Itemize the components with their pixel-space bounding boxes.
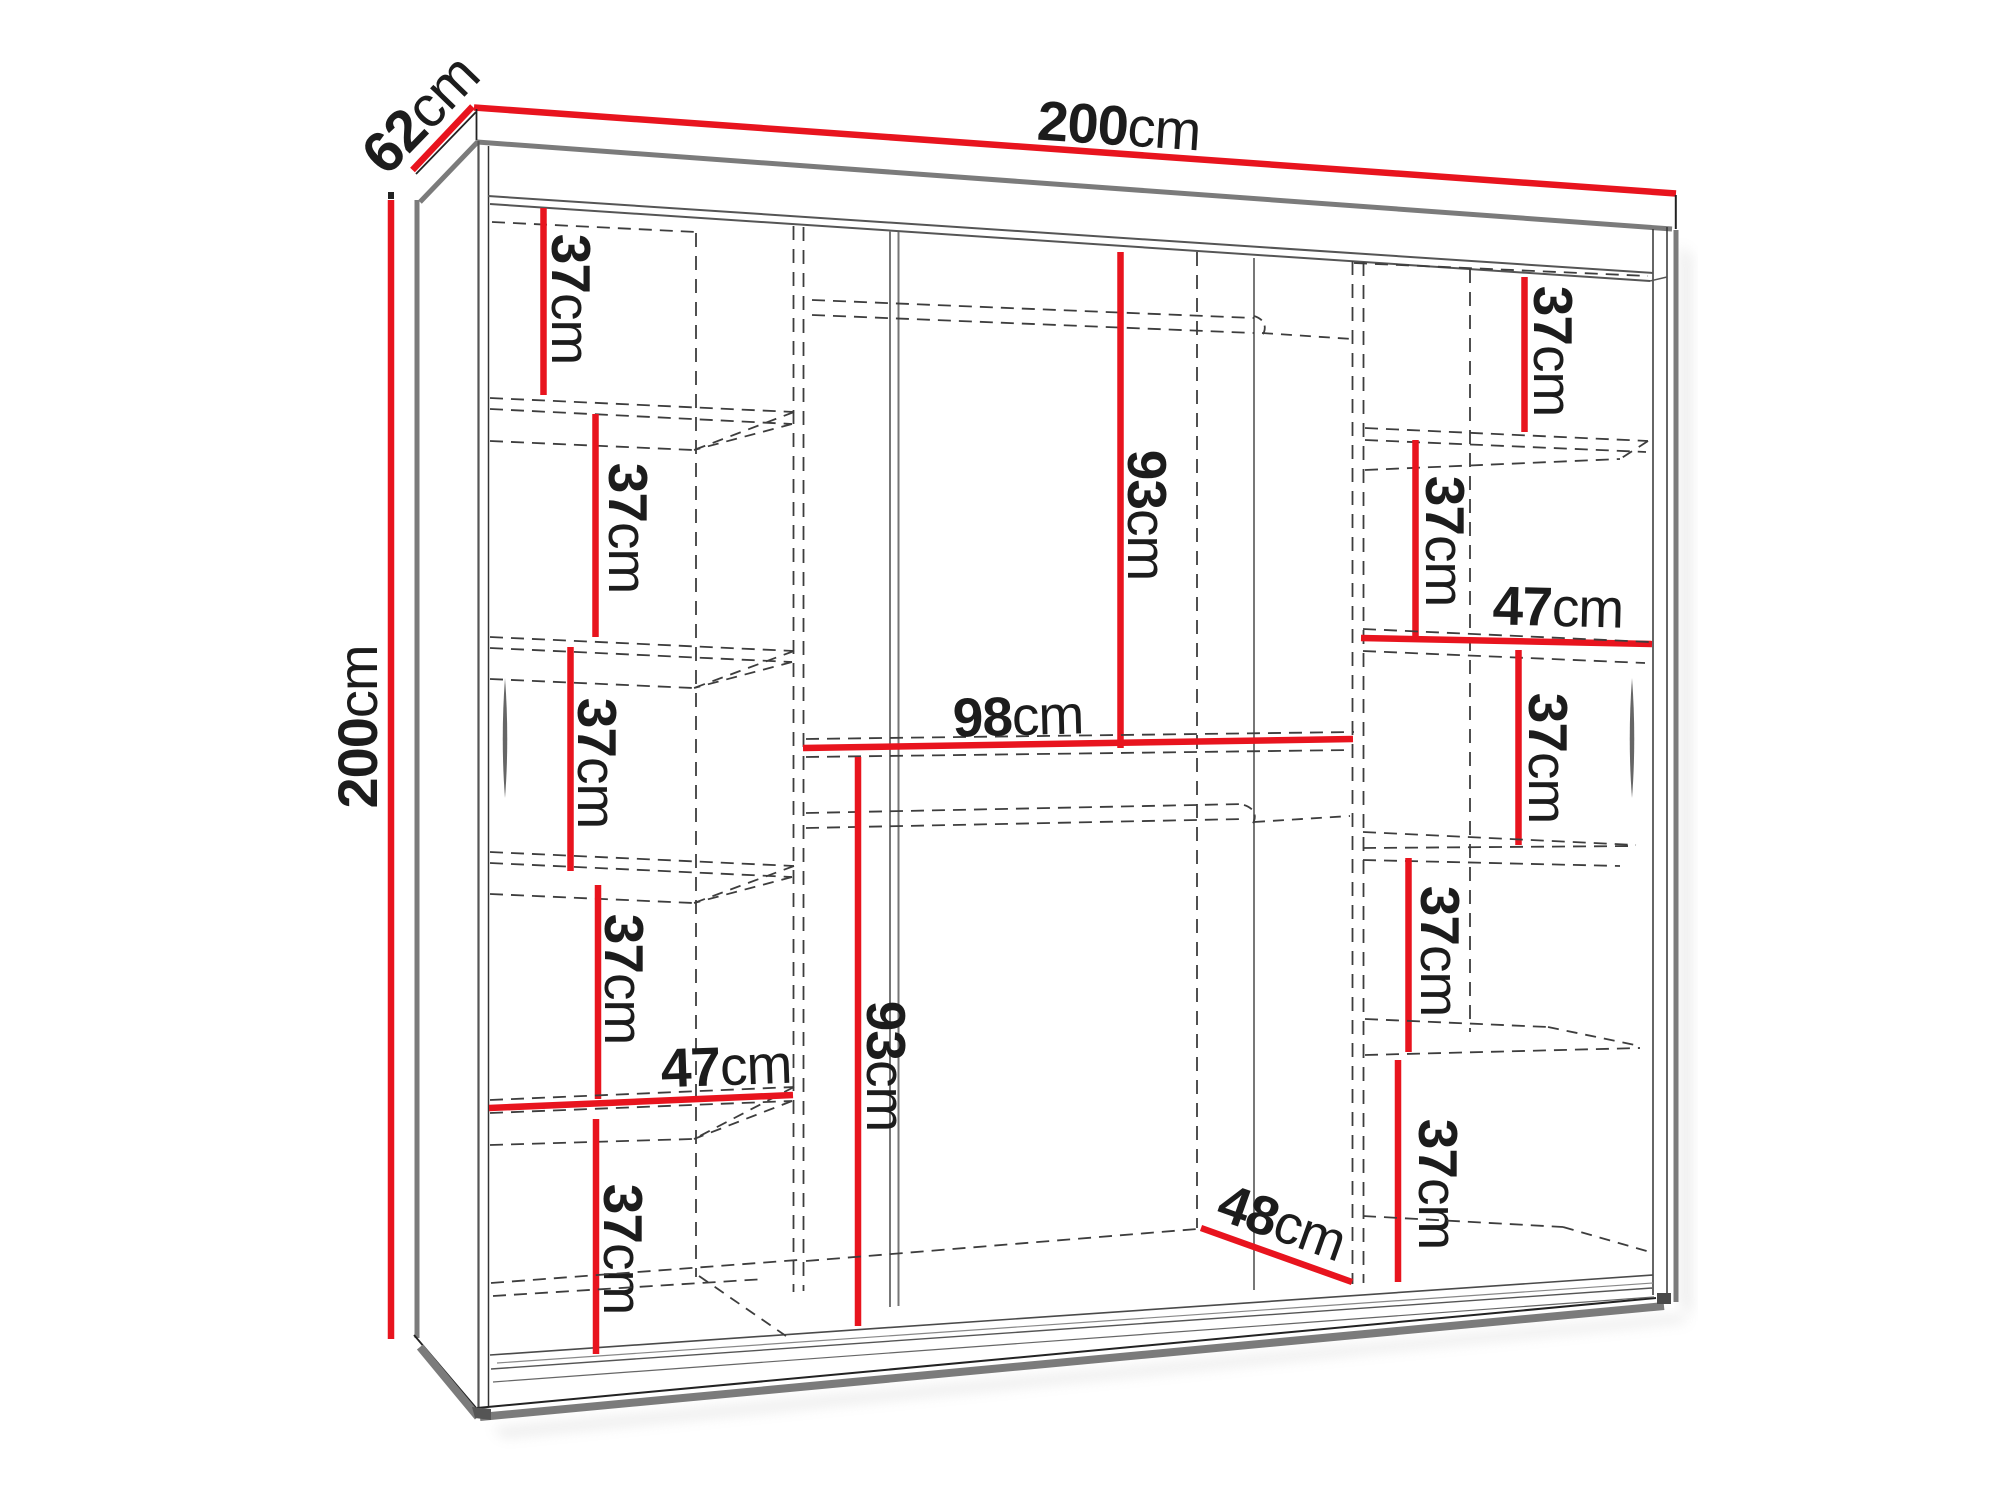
- svg-text:37cm: 37cm: [1414, 476, 1476, 607]
- svg-text:37cm: 37cm: [566, 698, 628, 829]
- svg-text:37cm: 37cm: [592, 1184, 654, 1315]
- svg-text:37cm: 37cm: [1517, 693, 1579, 824]
- svg-text:47cm: 47cm: [1492, 574, 1624, 639]
- svg-text:93cm: 93cm: [1116, 450, 1178, 581]
- svg-text:98cm: 98cm: [952, 683, 1084, 748]
- svg-text:37cm: 37cm: [593, 914, 655, 1045]
- svg-text:37cm: 37cm: [540, 234, 602, 365]
- svg-text:37cm: 37cm: [1522, 286, 1584, 417]
- svg-text:37cm: 37cm: [597, 463, 659, 594]
- svg-text:47cm: 47cm: [660, 1033, 793, 1100]
- svg-text:93cm: 93cm: [855, 1001, 917, 1132]
- svg-text:37cm: 37cm: [1407, 1119, 1469, 1250]
- svg-text:200cm: 200cm: [326, 645, 389, 808]
- svg-text:37cm: 37cm: [1409, 886, 1471, 1017]
- svg-text:200cm: 200cm: [1036, 88, 1203, 162]
